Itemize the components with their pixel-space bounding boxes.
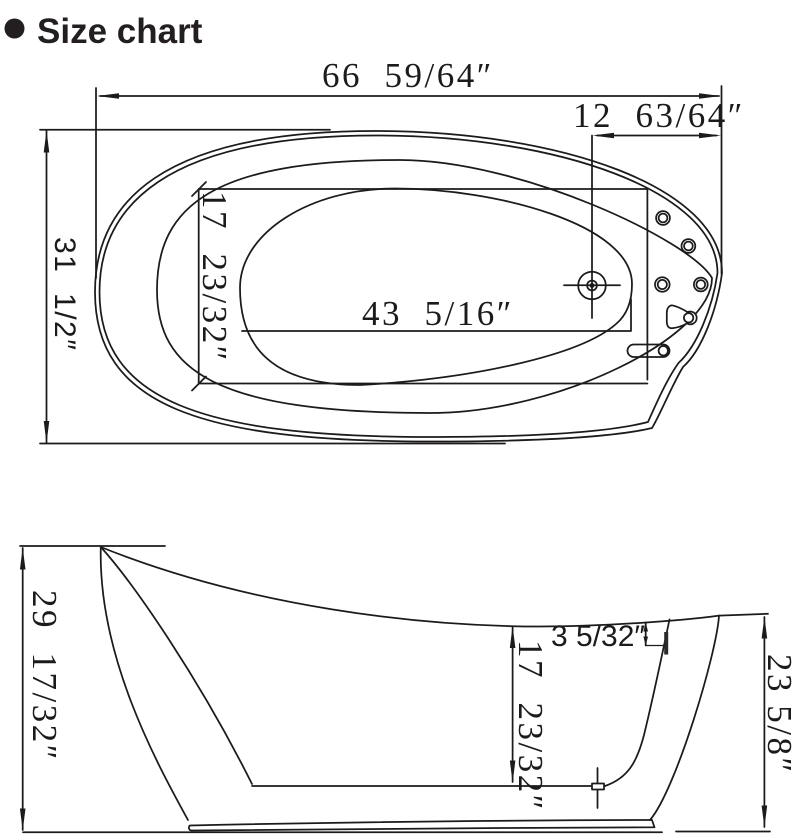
svg-text:Size chart: Size chart xyxy=(37,12,203,51)
svg-text:12 63/64″: 12 63/64″ xyxy=(573,96,745,135)
svg-text:17 23/32″: 17 23/32″ xyxy=(195,191,234,363)
svg-text:3 5/32″: 3 5/32″ xyxy=(551,620,645,653)
svg-text:66 59/64″: 66 59/64″ xyxy=(322,56,494,95)
svg-text:17 23/32″: 17 23/32″ xyxy=(511,640,550,812)
svg-text:31 1/2″: 31 1/2″ xyxy=(48,237,81,351)
svg-text:43 5/16″: 43 5/16″ xyxy=(362,294,514,333)
svg-text:29 17/32″: 29 17/32″ xyxy=(25,590,64,762)
svg-text:23 5/8″: 23 5/8″ xyxy=(760,654,799,775)
